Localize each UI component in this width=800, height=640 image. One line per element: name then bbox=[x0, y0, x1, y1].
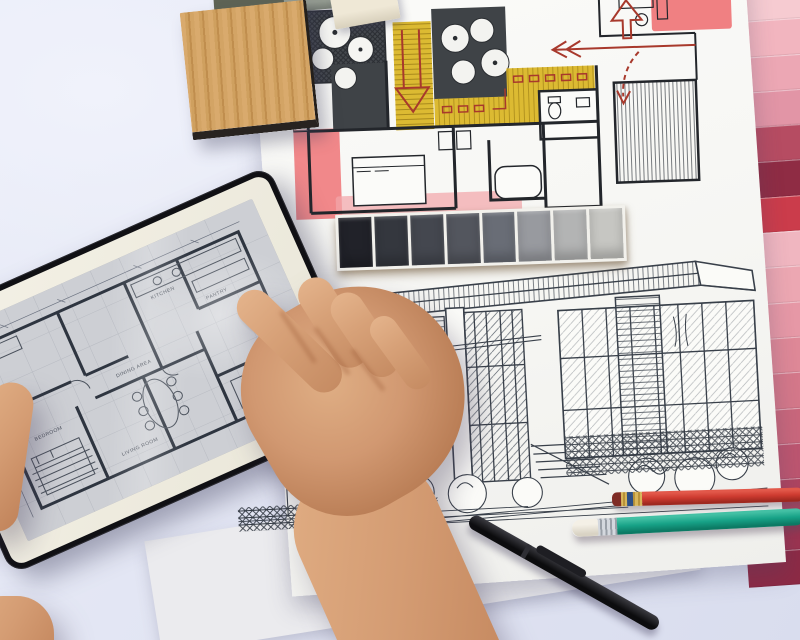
left-hand-palm bbox=[0, 596, 54, 640]
plan-bathroom bbox=[539, 89, 599, 139]
photo-scene: KITCHEN PANTRY DINING AREA LIVING ROOM S… bbox=[0, 0, 800, 640]
grayscale-swatch bbox=[410, 214, 445, 265]
teal-pencil-ferrule bbox=[597, 518, 618, 536]
wood-sample bbox=[180, 0, 320, 140]
plan-yellow-strip bbox=[393, 21, 435, 130]
grayscale-swatch bbox=[374, 216, 409, 267]
grayscale-swatch bbox=[446, 213, 481, 264]
pen-cap-band bbox=[520, 544, 532, 560]
grayscale-swatch bbox=[553, 209, 588, 260]
grayscale-swatch bbox=[482, 212, 517, 263]
grayscale-swatch bbox=[338, 217, 373, 268]
red-pencil-band bbox=[627, 492, 633, 506]
plan-patio-block bbox=[431, 6, 510, 101]
teal-pencil-eraser bbox=[572, 519, 599, 537]
red-pencil-eraser bbox=[612, 492, 621, 506]
grayscale-palette-strip bbox=[335, 205, 627, 271]
grayscale-swatch bbox=[589, 208, 624, 259]
grayscale-swatch bbox=[517, 211, 552, 262]
